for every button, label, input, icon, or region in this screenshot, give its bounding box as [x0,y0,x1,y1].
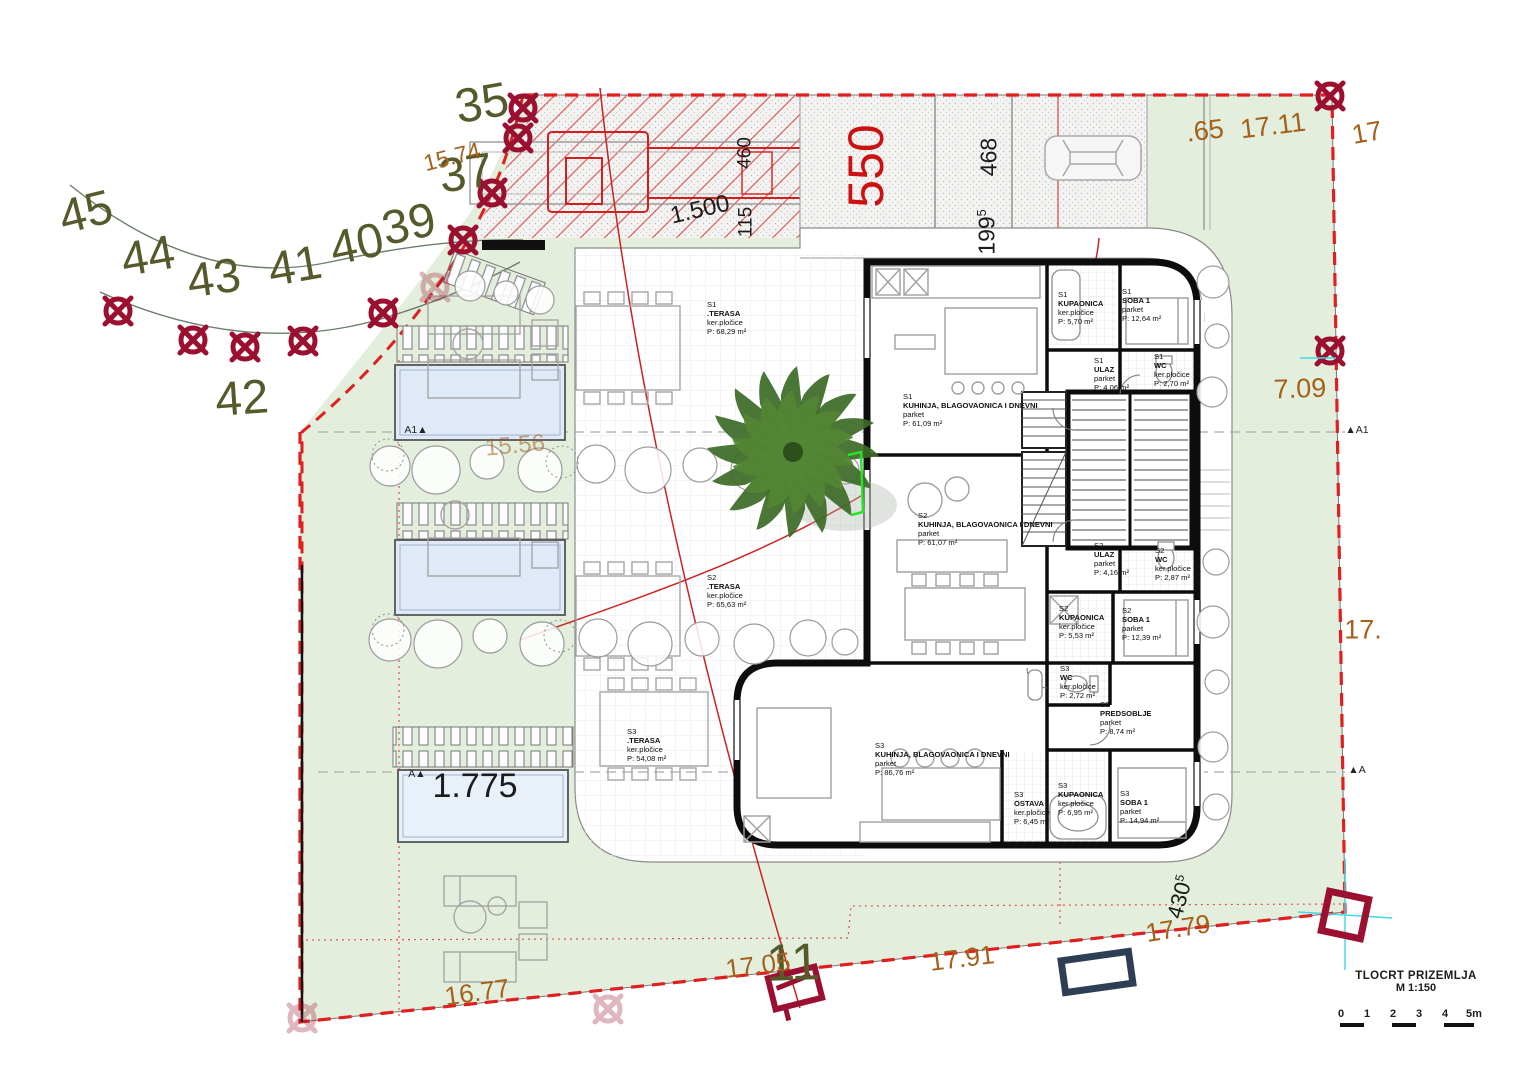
boundary-dim-17-91: 17.91 [928,941,996,975]
shrub [628,622,672,666]
scale-tick-5: 5m [1466,1008,1482,1020]
survey-number-41: 41 [265,239,326,296]
survey-number-45: 45 [54,183,117,242]
shrub [1203,794,1229,820]
room-label-s2-wc: S2WCker.pločiceP: 2,87 m² [1155,546,1191,582]
room-label-s2-terasa: S2.TERASAker.pločiceP: 65,63 m² [707,573,746,609]
shrub [455,271,485,301]
shrub [1197,266,1229,298]
plan-scale: M 1:150 [1340,982,1492,994]
tree-removal-marker [370,300,396,326]
boundary-dim-17-05: 17.05 [724,948,792,982]
floor-plan-canvas: TLOCRT PRIZEMLJA M 1:150 0 1 2 3 4 5m 45… [0,0,1526,1080]
shrub [526,286,554,314]
plan-title: TLOCRT PRIZEMLJA [1340,970,1492,982]
title-block: TLOCRT PRIZEMLJA M 1:150 [1340,970,1492,994]
plan-dim-468: 468 [978,138,1001,176]
room-label-s3-ostava: S3OSTAVAker.pločiceP: 6,45 m² [1014,790,1050,826]
shrub [1205,324,1229,348]
scale-bar: 0 1 2 3 4 5m [1338,1008,1498,1032]
shrub [832,629,858,655]
shrub [369,619,411,661]
boundary-dim-65: .65 [1185,115,1226,146]
shrub [734,624,774,664]
room-label-s3-predsoblje: S3PREDSOBLJEparketP: 8,74 m² [1100,700,1151,736]
room-label-s3-terasa: S3.TERASAker.pločiceP: 54,08 m² [627,727,666,763]
shrub [625,447,671,493]
survey-number-44: 44 [118,229,179,286]
survey-number-39: 39 [378,196,440,254]
room-label-s2-kuhinja: S2KUHINJA, BLAGOVAONICA I DNEVNIparketP:… [918,511,1053,547]
scale-tick-1: 1 [1364,1008,1370,1020]
survey-number-42: 42 [214,373,271,425]
tree-removal-marker [595,996,621,1022]
shrub [1197,377,1227,407]
plan-dim-460: 460 [736,137,755,169]
pool-2 [395,540,565,615]
room-label-s1-wc: S1WCker.pločiceP: 2,70 m² [1154,352,1190,388]
scale-tick-0: 0 [1338,1008,1344,1020]
shrub [412,446,460,494]
room-label-s3-wc: S3WCker.pločiceP: 2,72 m² [1060,664,1096,700]
tree-removal-marker [105,298,131,324]
shrub [494,281,518,305]
room-label-s3-soba1: S3SOBA 1parketP: 14,94 m² [1120,789,1159,825]
plan-dim-115: 115 [737,207,756,237]
shrub [683,448,717,482]
car-icon [1045,136,1141,180]
section-marker-a1-left: A1▲ [404,425,427,436]
section-marker-a-left: A▲ [408,769,425,780]
shrub [1198,732,1228,762]
site-plan-svg [0,0,1526,1080]
room-label-s2-ulaz: S2ULAZparketP: 4,16 m² [1094,541,1129,577]
scale-bar-segment [1444,1023,1474,1027]
room-label-s1-kuhinja: S1KUHINJA, BLAGOVAONICA I DNEVNIparketP:… [903,392,1038,428]
plan-dim-550: 550 [841,124,891,207]
room-label-s2-kupaonica: S2KUPAONICAker.pločiceP: 5,53 m² [1059,604,1104,640]
survey-number-43: 43 [184,252,244,307]
shrub [1197,606,1229,638]
boundary-dim-15-56: 15.56 [484,431,546,460]
survey-number-40: 40 [326,216,388,274]
section-marker-a-right: ▲A [1348,765,1365,776]
shrub [577,445,615,483]
tree-removal-marker [232,334,258,360]
scale-tick-2: 2 [1390,1008,1396,1020]
room-label-s1-terasa: S1.TERASAker.pločiceP: 68,29 m² [707,300,746,336]
shrub [579,619,617,657]
scale-bar-segment [1340,1023,1364,1027]
scale-tick-3: 3 [1416,1008,1422,1020]
room-label-s2-soba1: S2SOBA 1parketP: 12,39 m² [1122,606,1161,642]
boundary-dim-7-09: 7.09 [1273,375,1326,404]
survey-number-35: 35 [452,76,513,133]
shrub [520,622,564,666]
survey-point-navy [1061,951,1133,992]
shrub [473,619,507,653]
boundary-dim-17-topright: 17 [1350,117,1384,149]
plan-dim-199-5: 1995 [976,209,999,254]
shrub [1203,549,1229,575]
shrub [685,622,719,656]
boundary-dim-17-midright: 17. [1344,617,1382,644]
room-label-s3-kupaonica: S3KUPAONICAker.pločiceP: 6,95 m² [1058,781,1103,817]
room-label-s1-kupaonica: S1KUPAONICAker.pločiceP: 5,70 m² [1058,290,1103,326]
pool-dim-1-775: 1.775 [432,769,517,803]
room-label-s1-soba1: S1SOBA 1parketP: 12,64 m² [1122,287,1161,323]
section-marker-a1-right: ▲A1 [1345,425,1368,436]
room-label-s1-ulaz: S1ULAZparketP: 4,06 m² [1094,356,1129,392]
shrub [1205,670,1229,694]
shrub [790,620,826,656]
shrub [414,620,462,668]
tree-removal-marker [180,327,206,353]
scale-tick-4: 4 [1442,1008,1448,1020]
scale-bar-segment [1392,1023,1416,1027]
room-label-s3-kuhinja: S3KUHINJA, BLAGOVAONICA I DNEVNIparketP:… [875,741,1010,777]
